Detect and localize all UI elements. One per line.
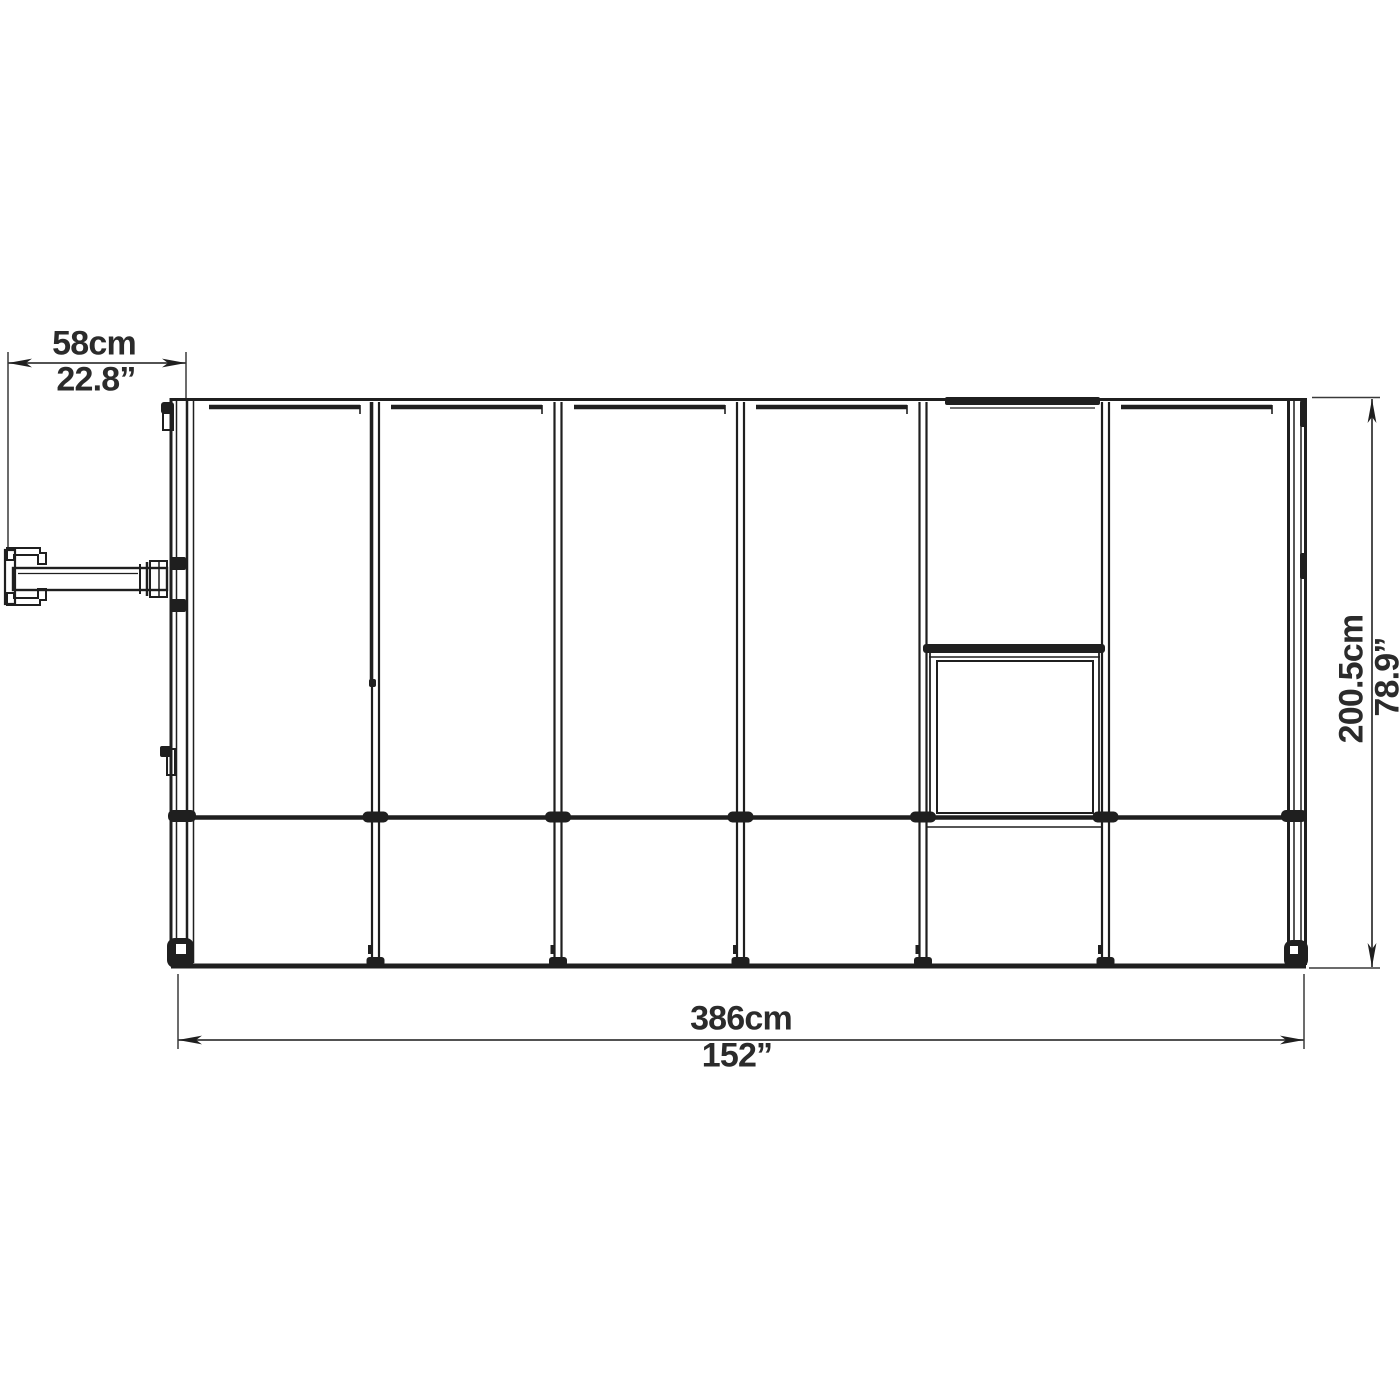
left-wall bbox=[161, 398, 194, 965]
door-handle bbox=[5, 548, 186, 612]
window-top-bar bbox=[923, 644, 1105, 653]
elevation-line-art bbox=[0, 0, 1400, 1400]
right-wall-hinge-lower bbox=[1300, 553, 1306, 579]
panel-5-top-bar bbox=[945, 397, 1100, 405]
seam-joint-2 bbox=[545, 812, 571, 823]
overall-width-metric-label: 386cm bbox=[690, 1000, 792, 1039]
overall-height-imperial-label: 78.9” bbox=[1369, 637, 1400, 716]
seam-joint-4 bbox=[910, 812, 936, 823]
overall-height-metric-label: 200.5cm bbox=[1333, 615, 1372, 744]
mullion-3 bbox=[737, 402, 744, 964]
seam-joint-1 bbox=[363, 812, 389, 823]
handle-offset-imperial-label: 22.8” bbox=[56, 361, 135, 400]
handle-wall-plate-lower bbox=[170, 599, 186, 612]
mullion-4 bbox=[920, 402, 927, 964]
overall-width-imperial-label: 152” bbox=[702, 1037, 773, 1076]
right-wall bbox=[1289, 398, 1307, 965]
seam-joint-3 bbox=[728, 812, 754, 823]
handle-offset-metric-label: 58cm bbox=[52, 325, 136, 364]
seam-joint-right-wall bbox=[1281, 810, 1307, 822]
mullions bbox=[369, 402, 1109, 964]
drawing-canvas: 58cm 22.8” 386cm 152” 200.5cm 78.9” bbox=[0, 0, 1400, 1400]
handle-wall-plate-upper bbox=[170, 557, 186, 570]
louver-window bbox=[923, 644, 1105, 827]
base-seam bbox=[168, 810, 1307, 823]
seam-joint-5 bbox=[1093, 812, 1119, 823]
mullion-1 bbox=[369, 402, 379, 964]
seam-joint-left-wall bbox=[168, 810, 196, 822]
handle-rod bbox=[13, 568, 167, 590]
mullion-5 bbox=[1102, 402, 1109, 964]
door-latch bbox=[160, 746, 175, 775]
greenhouse-structure bbox=[5, 397, 1308, 968]
handle-bracket-bottom-jaw bbox=[7, 589, 46, 605]
window-pane bbox=[937, 661, 1093, 813]
mullion-2 bbox=[555, 402, 562, 964]
right-wall-hinge-upper bbox=[1300, 401, 1306, 427]
